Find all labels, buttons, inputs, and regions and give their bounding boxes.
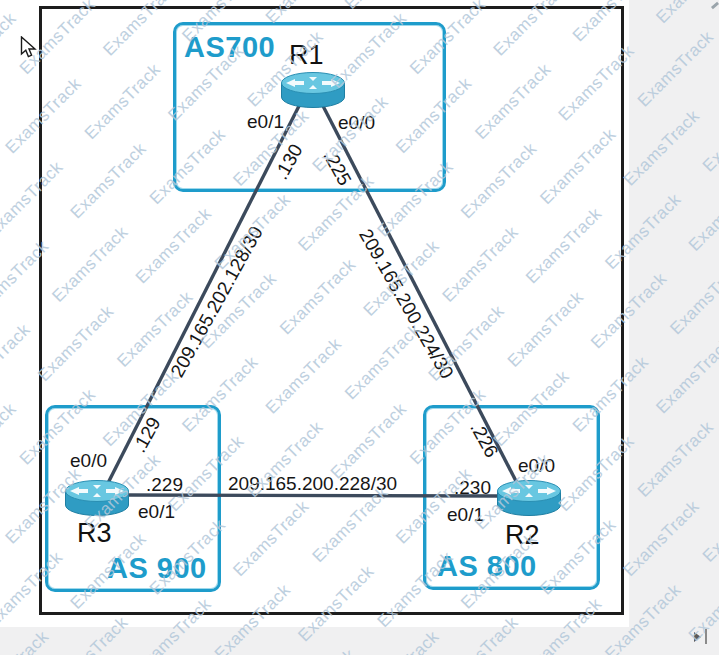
iface-r2-e0-1: e0/1 [447,505,484,525]
as700-label: AS700 [184,32,275,62]
as800-label: AS 800 [437,551,537,581]
router-label-r3: R3 [77,519,112,547]
iface-r1-e0-1: e0/1 [247,112,284,132]
router-icon-r2[interactable] [498,481,561,516]
router-label-r2: R2 [505,521,540,549]
as900-label: AS 900 [107,553,207,583]
host-r3-229: .229 [146,475,183,495]
iface-r2-e0-0: e0/0 [518,456,555,476]
iface-r1-e0-0: e0/0 [338,113,375,133]
router-icon-r3[interactable] [66,481,129,516]
router-label-r1: R1 [289,41,324,69]
link-r3-r2 [128,495,500,496]
mouse-cursor-icon [20,36,37,61]
iface-r3-e0-0: e0/0 [70,451,107,471]
host-r2-230: .230 [454,478,491,498]
link-r1-r3 [108,104,300,483]
subnet-r3-r2: 209.165.200.228/30 [228,474,397,494]
iface-r3-e0-1: e0/1 [138,502,175,522]
router-icon-r1[interactable] [282,73,345,108]
screenshot-root: AS700 AS 900 AS 800 R1 R3 R2 e0/1 .130 2… [0,0,719,655]
